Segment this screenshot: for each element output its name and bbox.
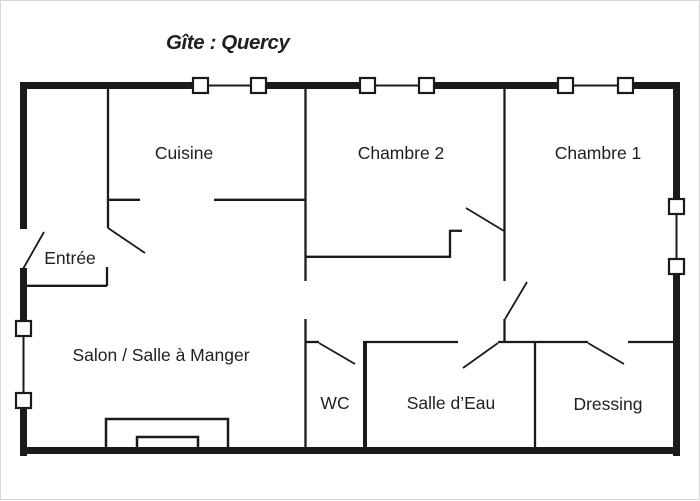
window-icon [16, 393, 31, 408]
room-label-salledeau: Salle d’Eau [407, 393, 496, 413]
window-icon [360, 78, 375, 93]
window-icon [16, 321, 31, 336]
room-label-wc: WC [320, 393, 349, 413]
window-icon [669, 259, 684, 274]
window-icon [251, 78, 266, 93]
room-label-salon: Salon / Salle à Manger [72, 345, 249, 365]
front-door-leaf [23, 232, 44, 269]
window-icon [669, 199, 684, 214]
room-label-dressing: Dressing [573, 394, 642, 414]
wc-door-leaf [319, 343, 355, 364]
dressing-door-leaf [588, 343, 624, 364]
chambre2-door-leaf [466, 208, 504, 231]
window-icon [419, 78, 434, 93]
floor-plan-svg: Gîte : Quercy Cuisine Chambre 2 Chambre … [1, 1, 700, 501]
room-label-chambre1: Chambre 1 [555, 143, 642, 163]
window-icon [193, 78, 208, 93]
plan-title: Gîte : Quercy [166, 31, 292, 54]
room-label-cuisine: Cuisine [155, 143, 213, 163]
window-icon [558, 78, 573, 93]
window-icon [618, 78, 633, 93]
room-label-entree: Entrée [44, 248, 96, 268]
room-label-chambre2: Chambre 2 [358, 143, 445, 163]
cuisine-door-leaf [108, 228, 145, 253]
floor-plan-page: Gîte : Quercy Cuisine Chambre 2 Chambre … [0, 0, 700, 500]
chambre1-door-leaf [505, 282, 527, 319]
salledeau-door-leaf [463, 343, 498, 368]
